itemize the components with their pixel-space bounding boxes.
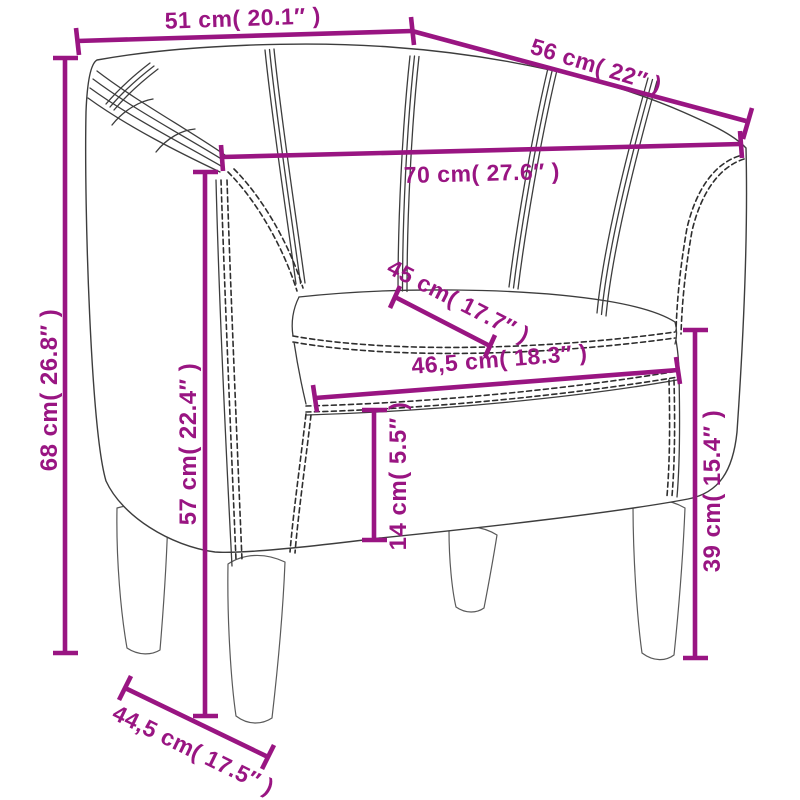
dimension-label-back-top-width: 51 cm( 20.1″ ) xyxy=(164,2,321,33)
dimension-label-overall-width: 70 cm( 27.6″ ) xyxy=(403,158,560,188)
dimension-label-cushion-thickness: 14 cm( 5.5″ ) xyxy=(385,402,412,551)
chair-leg-back-right xyxy=(449,527,497,612)
dimension-label-armrest-height: 57 cm( 22.4″ ) xyxy=(175,363,202,526)
dimension-overall-height: 68 cm( 26.8″ ) xyxy=(36,58,78,653)
dimension-label-overall-height: 68 cm( 26.8″ ) xyxy=(36,309,63,472)
chair-leg-front-left xyxy=(228,555,285,723)
chair-leg-front-right xyxy=(633,500,685,660)
dimension-diagram: 51 cm( 20.1″ ) 56 cm( 22″ ) 70 cm( 27.6″… xyxy=(0,0,800,800)
tub-chair-diagram-canvas: 51 cm( 20.1″ ) 56 cm( 22″ ) 70 cm( 27.6″… xyxy=(0,0,800,800)
dimension-label-seat-height: 39 cm( 15.4″ ) xyxy=(699,410,726,573)
